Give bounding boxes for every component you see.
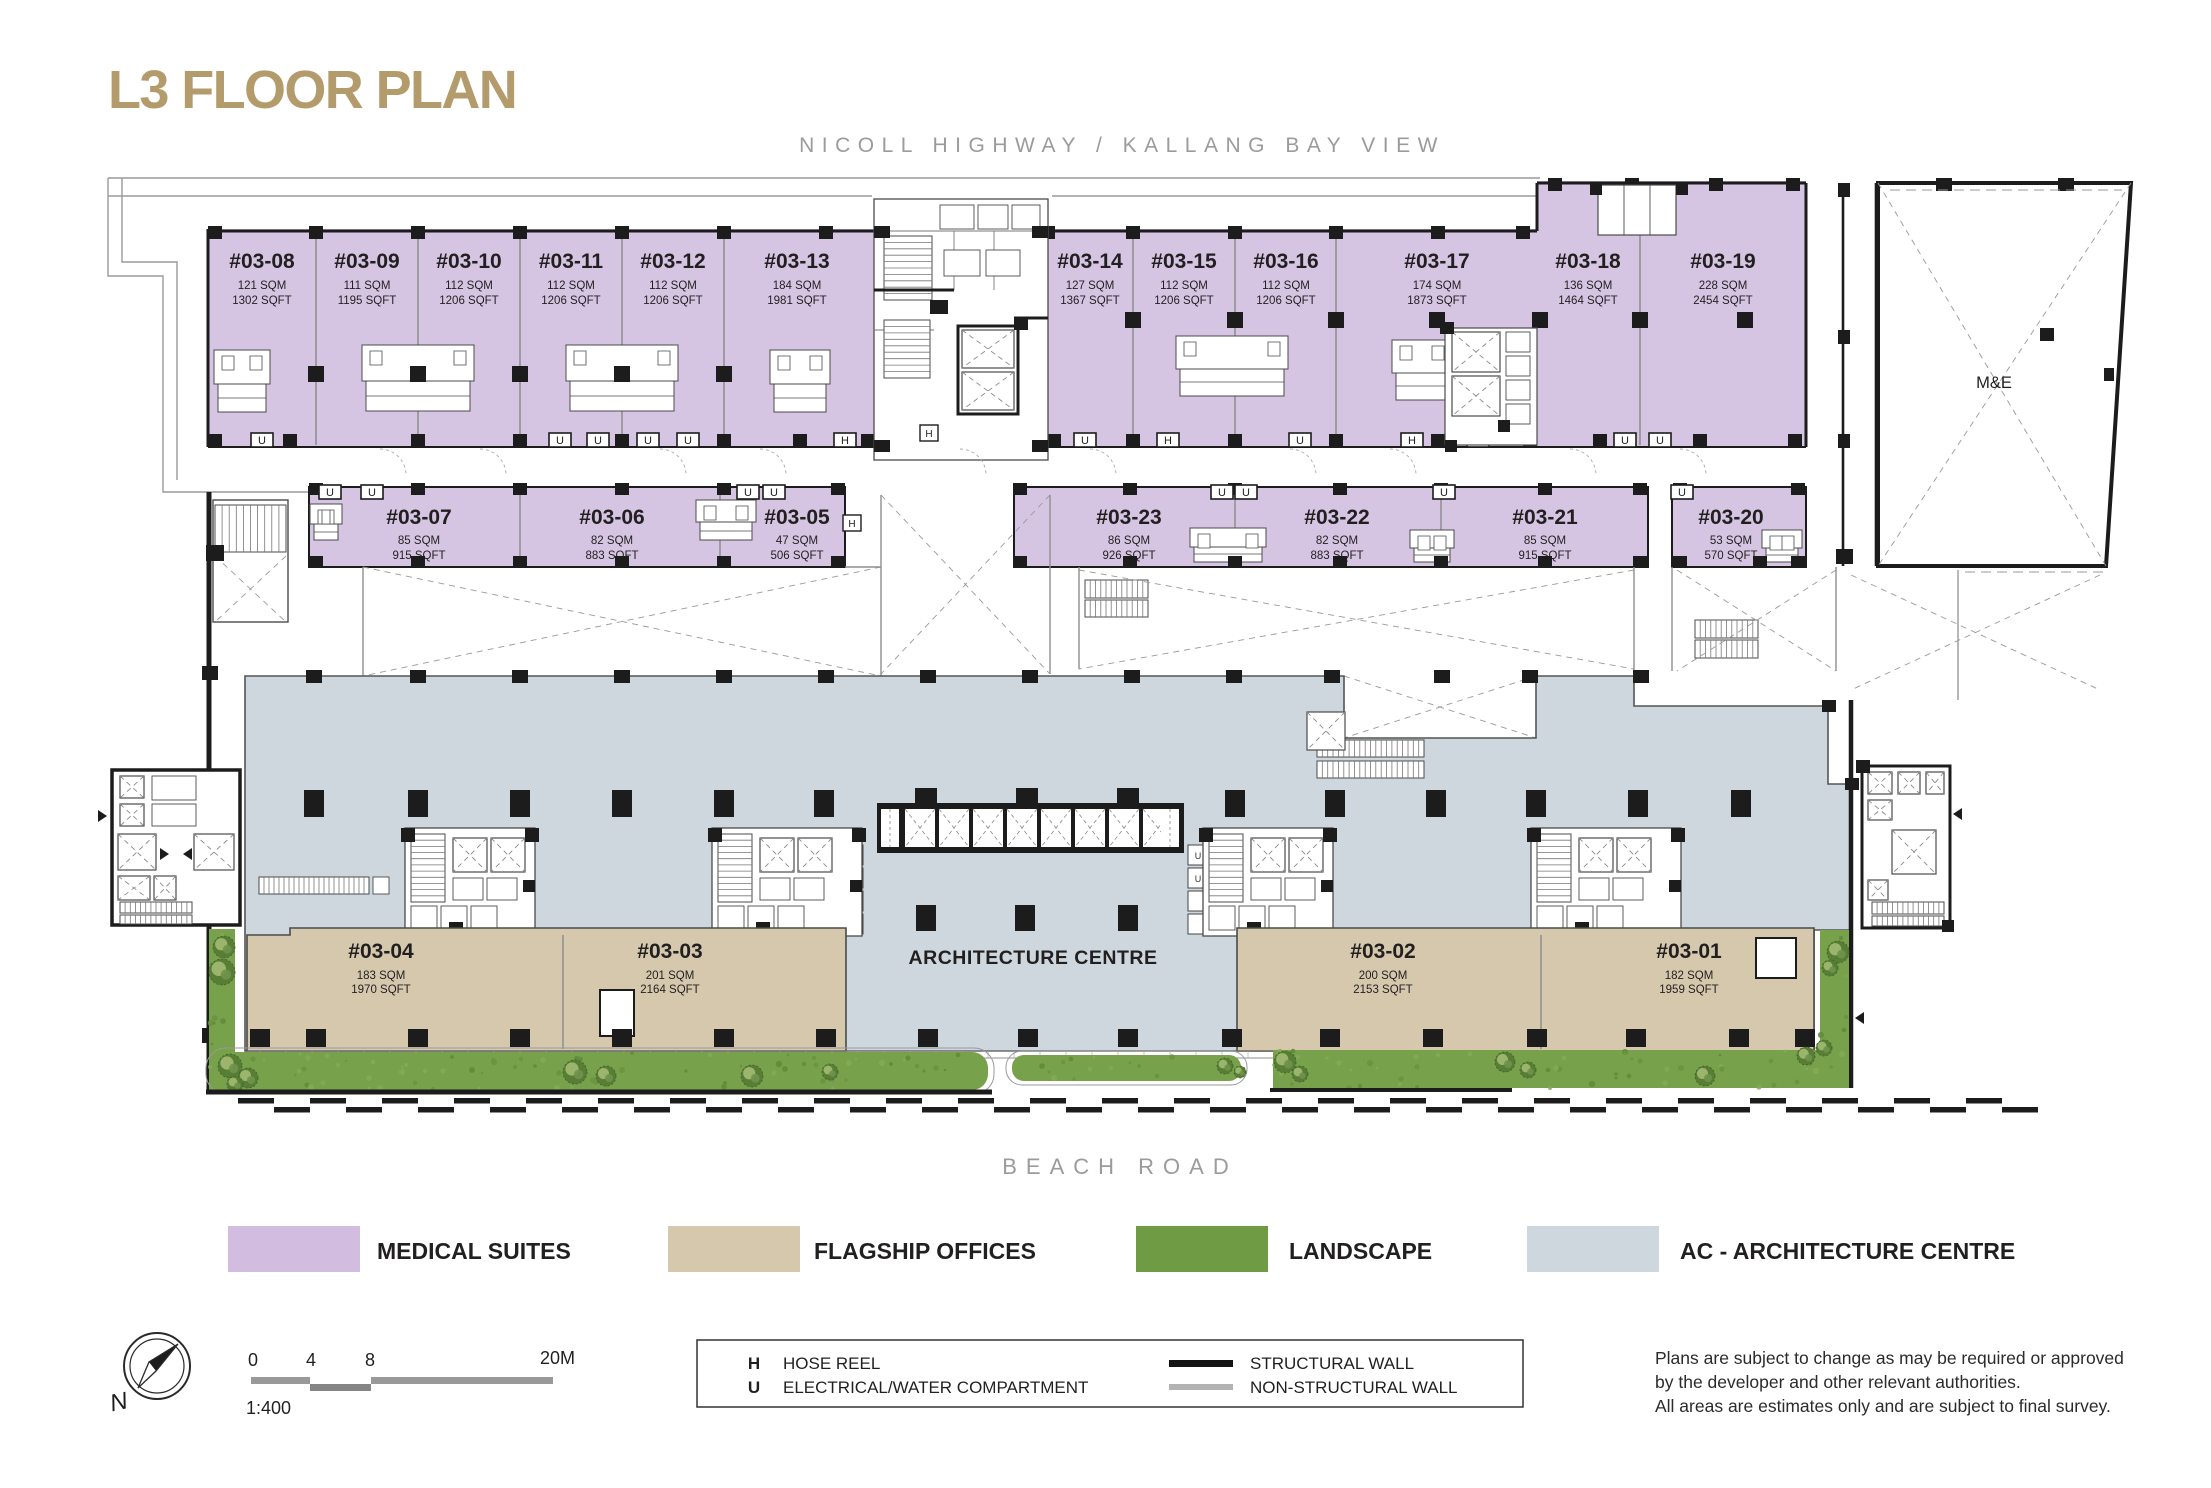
svg-text:U: U: [1678, 487, 1686, 499]
svg-text:#03-11: #03-11: [539, 250, 604, 273]
svg-text:#03-22: #03-22: [1304, 506, 1369, 529]
svg-text:4: 4: [306, 1350, 316, 1370]
svg-text:#03-15: #03-15: [1151, 250, 1217, 273]
svg-text:LANDSCAPE: LANDSCAPE: [1289, 1238, 1432, 1264]
svg-text:#03-14: #03-14: [1057, 250, 1123, 273]
svg-text:#03-23: #03-23: [1096, 506, 1161, 529]
svg-text:FLAGSHIP OFFICES: FLAGSHIP OFFICES: [814, 1238, 1036, 1264]
svg-text:AC - ARCHITECTURE CENTRE: AC - ARCHITECTURE CENTRE: [1680, 1238, 2015, 1264]
svg-text:1959 SQFT: 1959 SQFT: [1659, 984, 1718, 996]
svg-text:#03-05: #03-05: [764, 506, 830, 529]
svg-text:ELECTRICAL/WATER COMPARTMENT: ELECTRICAL/WATER COMPARTMENT: [783, 1378, 1088, 1397]
svg-text:570 SQFT: 570 SQFT: [1704, 550, 1757, 562]
svg-text:U: U: [1242, 487, 1250, 499]
svg-text:U: U: [258, 435, 266, 447]
svg-text:228 SQM: 228 SQM: [1699, 280, 1748, 292]
svg-text:U: U: [1296, 435, 1304, 447]
svg-text:H: H: [925, 429, 932, 440]
svg-text:U: U: [556, 435, 564, 447]
svg-text:136 SQM: 136 SQM: [1564, 280, 1613, 292]
svg-text:by the developer and other rel: by the developer and other relevant auth…: [1655, 1372, 2021, 1392]
svg-text:#03-06: #03-06: [579, 506, 644, 529]
svg-text:Plans are subject to change as: Plans are subject to change as may be re…: [1655, 1348, 2124, 1368]
svg-text:506 SQFT: 506 SQFT: [770, 550, 823, 562]
svg-text:#03-18: #03-18: [1555, 250, 1621, 273]
svg-text:#03-16: #03-16: [1253, 250, 1318, 273]
svg-text:U: U: [326, 487, 334, 499]
svg-text:#03-04: #03-04: [348, 940, 414, 963]
svg-text:182 SQM: 182 SQM: [1665, 970, 1714, 982]
svg-text:ARCHITECTURE CENTRE: ARCHITECTURE CENTRE: [909, 947, 1158, 969]
svg-text:200 SQM: 200 SQM: [1359, 970, 1408, 982]
svg-text:174 SQM: 174 SQM: [1413, 280, 1462, 292]
svg-text:20M: 20M: [540, 1348, 575, 1368]
svg-text:1195 SQFT: 1195 SQFT: [338, 295, 397, 307]
svg-text:NICOLL HIGHWAY / KALLANG BAY V: NICOLL HIGHWAY / KALLANG BAY VIEW: [799, 134, 1445, 157]
svg-text:53 SQM: 53 SQM: [1710, 535, 1752, 547]
svg-text:U: U: [1621, 435, 1629, 447]
svg-text:1206 SQFT: 1206 SQFT: [1256, 295, 1315, 307]
svg-text:H: H: [748, 1354, 760, 1373]
svg-text:82 SQM: 82 SQM: [1316, 535, 1358, 547]
svg-text:1981 SQFT: 1981 SQFT: [767, 295, 826, 307]
svg-text:U: U: [744, 487, 752, 499]
svg-text:H: H: [1408, 435, 1416, 447]
svg-text:U: U: [1656, 435, 1664, 447]
svg-text:2454 SQFT: 2454 SQFT: [1693, 295, 1752, 307]
svg-text:U: U: [644, 435, 652, 447]
svg-text:#03-08: #03-08: [229, 250, 295, 273]
svg-text:H: H: [1164, 435, 1172, 447]
svg-text:U: U: [1195, 874, 1202, 884]
svg-text:1302 SQFT: 1302 SQFT: [232, 295, 291, 307]
svg-text:184 SQM: 184 SQM: [773, 280, 822, 292]
svg-text:All areas are estimates only a: All areas are estimates only and are sub…: [1655, 1396, 2111, 1416]
svg-text:STRUCTURAL WALL: STRUCTURAL WALL: [1250, 1354, 1414, 1373]
svg-text:112 SQM: 112 SQM: [445, 280, 493, 292]
svg-text:#03-02: #03-02: [1350, 940, 1415, 963]
svg-text:#03-09: #03-09: [334, 250, 399, 273]
svg-text:M&E: M&E: [1976, 374, 2012, 392]
svg-text:#03-01: #03-01: [1656, 940, 1722, 963]
svg-text:112 SQM: 112 SQM: [547, 280, 595, 292]
svg-text:#03-19: #03-19: [1690, 250, 1755, 273]
svg-text:127 SQM: 127 SQM: [1066, 280, 1115, 292]
svg-text:H: H: [848, 519, 855, 530]
svg-text:85 SQM: 85 SQM: [1524, 535, 1566, 547]
svg-text:L3 FLOOR PLAN: L3 FLOOR PLAN: [108, 60, 516, 120]
svg-text:883 SQFT: 883 SQFT: [585, 550, 638, 562]
svg-text:1206 SQFT: 1206 SQFT: [439, 295, 498, 307]
svg-text:82 SQM: 82 SQM: [591, 535, 633, 547]
svg-text:1367 SQFT: 1367 SQFT: [1060, 295, 1119, 307]
svg-text:#03-07: #03-07: [386, 506, 451, 529]
svg-text:1206 SQFT: 1206 SQFT: [1154, 295, 1213, 307]
svg-text:2153 SQFT: 2153 SQFT: [1353, 984, 1412, 996]
svg-text:#03-21: #03-21: [1512, 506, 1578, 529]
svg-text:8: 8: [365, 1350, 375, 1370]
svg-text:#03-03: #03-03: [637, 940, 702, 963]
svg-text:U: U: [1195, 851, 1202, 861]
svg-text:111 SQM: 111 SQM: [344, 280, 391, 292]
svg-text:86 SQM: 86 SQM: [1108, 535, 1150, 547]
svg-text:U: U: [368, 487, 376, 499]
svg-text:U: U: [1218, 487, 1226, 499]
svg-text:U: U: [594, 435, 602, 447]
svg-text:NON-STRUCTURAL WALL: NON-STRUCTURAL WALL: [1250, 1378, 1457, 1397]
svg-text:112 SQM: 112 SQM: [1262, 280, 1310, 292]
svg-text:201 SQM: 201 SQM: [646, 970, 695, 982]
svg-text:#03-10: #03-10: [436, 250, 501, 273]
svg-text:H: H: [841, 435, 849, 447]
svg-text:U: U: [748, 1378, 760, 1397]
svg-text:U: U: [770, 487, 778, 499]
svg-text:MEDICAL SUITES: MEDICAL SUITES: [377, 1238, 571, 1264]
svg-text:#03-20: #03-20: [1698, 506, 1763, 529]
svg-text:1206 SQFT: 1206 SQFT: [541, 295, 600, 307]
svg-text:U: U: [1440, 487, 1448, 499]
svg-text:#03-12: #03-12: [640, 250, 705, 273]
svg-text:HOSE REEL: HOSE REEL: [783, 1354, 880, 1373]
svg-text:1464 SQFT: 1464 SQFT: [1558, 295, 1617, 307]
svg-text:47 SQM: 47 SQM: [776, 535, 818, 547]
svg-text:1873 SQFT: 1873 SQFT: [1407, 295, 1466, 307]
svg-text:1206 SQFT: 1206 SQFT: [643, 295, 702, 307]
svg-text:112 SQM: 112 SQM: [1160, 280, 1208, 292]
svg-text:1970 SQFT: 1970 SQFT: [351, 984, 410, 996]
svg-text:121 SQM: 121 SQM: [238, 280, 287, 292]
svg-text:2164 SQFT: 2164 SQFT: [640, 984, 699, 996]
svg-text:U: U: [684, 435, 692, 447]
svg-text:85 SQM: 85 SQM: [398, 535, 440, 547]
svg-text:#03-13: #03-13: [764, 250, 829, 273]
svg-text:183 SQM: 183 SQM: [357, 970, 406, 982]
svg-text:U: U: [1081, 435, 1089, 447]
svg-text:BEACH ROAD: BEACH ROAD: [1002, 1154, 1237, 1179]
svg-text:1:400: 1:400: [246, 1398, 291, 1418]
svg-text:0: 0: [248, 1350, 258, 1370]
svg-text:#03-17: #03-17: [1404, 250, 1469, 273]
svg-text:112 SQM: 112 SQM: [649, 280, 697, 292]
